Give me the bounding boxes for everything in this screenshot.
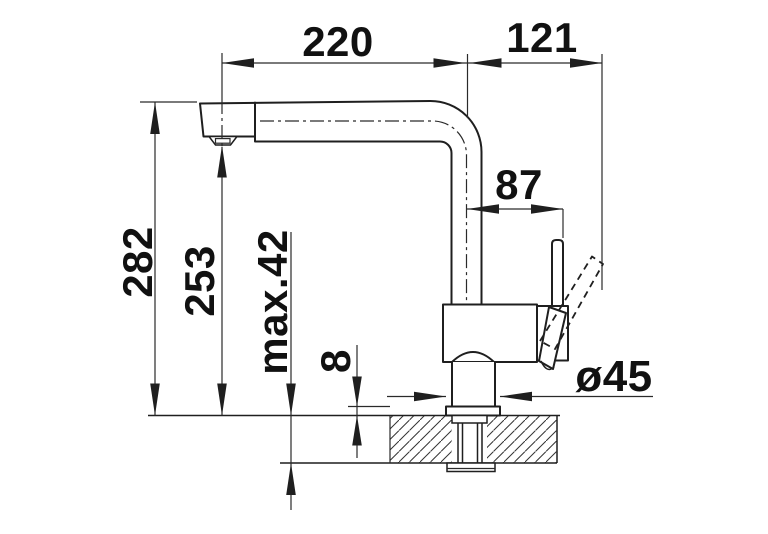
arrowhead [217,146,227,178]
base-cylinder-fill [452,362,495,407]
base-flange [446,407,500,416]
arrowhead [286,384,296,416]
arrowhead [222,58,254,68]
arrowhead [150,384,160,416]
arrowhead [150,102,160,134]
dim-label-87: 87 [495,161,543,208]
dim-label-253: 253 [176,245,223,317]
arrowhead [470,58,502,68]
arrowhead [352,377,362,407]
spout-and-riser [200,101,482,306]
mixer-body [443,305,537,363]
faucet-dimension-drawing: 220 121 87 282 253 max.42 [0,0,768,534]
arrowhead [286,463,296,495]
dim-base-plate-height: 8 [312,345,390,458]
counter-hatch-right [487,416,557,463]
lever-upright [552,240,563,306]
arrowhead [217,384,227,416]
dim-label-121: 121 [506,14,578,61]
mounting-shank [458,423,482,463]
dim-label-220: 220 [302,18,374,65]
mounting-nut [447,463,495,472]
dim-rear-extent: 121 [470,14,603,290]
arrowhead [414,392,446,402]
drawing-canvas: 220 121 87 282 253 max.42 [0,0,768,534]
dim-label-max42: max.42 [249,229,296,374]
counter-hatch-left [390,416,452,463]
dim-label-8: 8 [312,349,359,373]
arrowhead [352,416,362,446]
dim-label-282: 282 [114,226,161,298]
arrowhead [434,58,466,68]
dim-label-d45: ø45 [575,352,652,401]
dim-max-counter-thickness: max.42 [249,229,296,510]
mounting-washer [452,416,487,424]
arrowhead [500,392,532,402]
